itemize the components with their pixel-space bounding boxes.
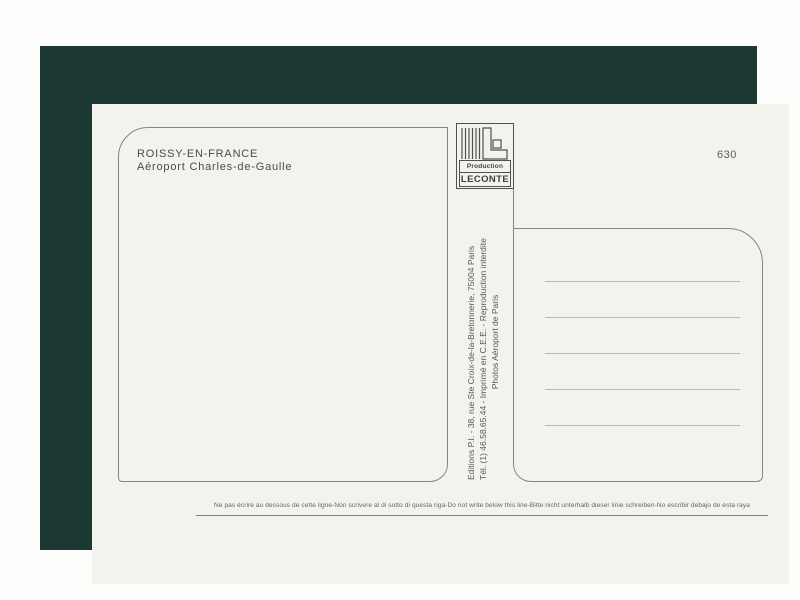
divider-connector-line	[513, 189, 514, 228]
address-line	[545, 281, 740, 282]
address-line	[545, 389, 740, 390]
address-line	[545, 317, 740, 318]
credits-line-1: Editions P.I. - 38, rue Ste Croix-de-la-…	[465, 204, 477, 480]
green-mat-frame: ROISSY-EN-FRANCE Aéroport Charles-de-Gau…	[40, 46, 757, 550]
postcard-card: ROISSY-EN-FRANCE Aéroport Charles-de-Gau…	[92, 104, 789, 584]
title-line-1: ROISSY-EN-FRANCE	[137, 148, 292, 161]
scanned-postcard-back: { "postcard": { "title_line1": "ROISSY-E…	[0, 0, 800, 600]
footer-rule-line	[196, 515, 768, 516]
credits-line-3: Photos Aéroport de Paris	[489, 204, 501, 480]
publisher-credits-rotated: Editions P.I. - 38, rue Ste Croix-de-la-…	[465, 204, 501, 480]
message-area-box	[118, 127, 448, 482]
credits-line-2: Tél. (1) 46.58.65.44 - Imprimé en C.E.E.…	[477, 204, 489, 480]
postcard-title: ROISSY-EN-FRANCE Aéroport Charles-de-Gau…	[137, 148, 292, 174]
address-line	[545, 425, 740, 426]
logo-leconte-label: LECONTE	[459, 172, 511, 187]
do-not-write-note: Ne pas écrire au dessous de cette ligne-…	[196, 502, 768, 509]
card-number: 630	[717, 149, 737, 161]
title-line-2: Aéroport Charles-de-Gaulle	[137, 161, 292, 174]
publisher-logo: Production LECONTE	[456, 123, 514, 189]
address-area-box	[513, 228, 763, 482]
address-line	[545, 353, 740, 354]
